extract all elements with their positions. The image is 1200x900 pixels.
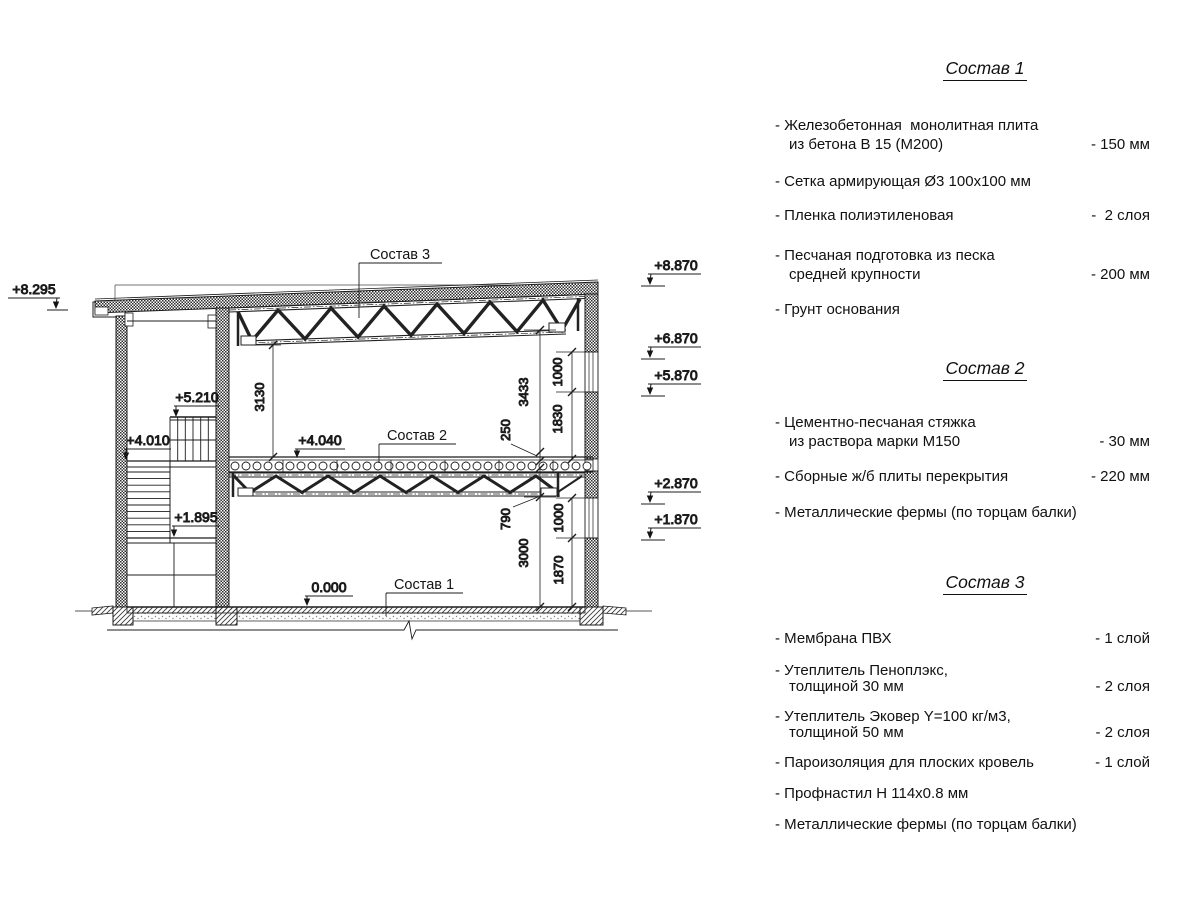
layer-item: - Пароизоляция для плоских кровель - 1 с… xyxy=(775,755,1150,771)
layer-text: толщиной 50 мм xyxy=(775,725,1150,741)
elevation-4010: +4.010 xyxy=(123,432,171,460)
layer-thickness: - 220 мм xyxy=(1091,467,1150,486)
ground-floor xyxy=(75,606,652,639)
drawing-sheet: 3130 3433 250 790 3000 xyxy=(0,0,1200,900)
elevation-roof-value: +8.870 xyxy=(654,257,697,273)
layer-item: - Цементно-песчаная стяжка из раствора м… xyxy=(775,413,1150,451)
layer-text: толщиной 30 мм xyxy=(775,679,1150,695)
elevation-eave: +8.295 xyxy=(8,281,68,310)
layer-thickness: - 150 мм xyxy=(1091,135,1150,154)
elevation-4040: +4.040 xyxy=(294,432,345,458)
elevation-0000-value: 0.000 xyxy=(311,579,346,595)
elevation-2870: +2.870 xyxy=(641,475,701,504)
layer-item: - Сетка армирующая Ø3 100х100 мм xyxy=(775,172,1150,191)
ground-line xyxy=(107,621,618,639)
layer-thickness: - 1 слой xyxy=(1095,755,1150,771)
label-sostav1: Состав 1 xyxy=(394,577,454,593)
layer-item: - Утеплитель Пеноплэкс, толщиной 30 мм -… xyxy=(775,663,1150,695)
label-sostav2: Состав 2 xyxy=(387,428,447,444)
elevation-4040-value: +4.040 xyxy=(298,432,341,448)
layer-text: - Песчаная подготовка из песка xyxy=(775,246,1150,265)
elevation-roof: +8.870 xyxy=(641,257,701,286)
stair-wall xyxy=(216,308,229,607)
layer-item: - Утеплитель Эковер Y=100 кг/м3, толщино… xyxy=(775,709,1150,741)
floor-truss xyxy=(229,473,585,497)
dim-1830: 1830 xyxy=(550,405,565,434)
layer-item: - Песчаная подготовка из песка средней к… xyxy=(775,246,1150,284)
elevation-1895-value: +1.895 xyxy=(174,509,217,525)
dim-3130: 3130 xyxy=(252,383,267,412)
staircase xyxy=(125,313,216,607)
dim-1000-upper: 1000 xyxy=(550,358,565,387)
dim-3433: 3433 xyxy=(516,378,531,407)
eave-gutter xyxy=(95,307,108,315)
layer-text: - Мембрана ПВХ xyxy=(775,631,1150,647)
elevation-6870: +6.870 xyxy=(641,330,701,359)
layer-item: - Железобетонная монолитная плита из бет… xyxy=(775,116,1150,154)
elevation-5870: +5.870 xyxy=(641,367,701,396)
leader-sostav2: Состав 2 xyxy=(379,428,456,463)
layer-text: - Цементно-песчаная стяжка xyxy=(775,413,1150,432)
dim-left-clear: 3130 xyxy=(252,341,281,461)
layer-text: - Сетка армирующая Ø3 100х100 мм xyxy=(775,172,1150,191)
dim-790: 790 xyxy=(498,508,513,530)
dim-250: 250 xyxy=(498,419,513,441)
layer-thickness: - 2 слоя xyxy=(1095,679,1150,695)
stair-railing xyxy=(170,417,216,461)
elevation-5210-value: +5.210 xyxy=(175,389,218,405)
layer-text: - Металлические фермы (по торцам балки) xyxy=(775,817,1150,833)
elevation-6870-value: +6.870 xyxy=(654,330,697,346)
layer-item: - Металлические фермы (по торцам балки) xyxy=(775,503,1150,522)
dim-3000: 3000 xyxy=(516,539,531,568)
layer-item: - Мембрана ПВХ - 1 слой xyxy=(775,631,1150,647)
leader-sostav3: Состав 3 xyxy=(359,247,442,318)
section-title-sostav2: Состав 2 xyxy=(785,358,1185,379)
layer-text: - Утеплитель Эковер Y=100 кг/м3, xyxy=(775,709,1150,725)
dim-wall-column: 1000 1830 1000 1870 xyxy=(550,348,586,611)
left-wall xyxy=(116,316,127,607)
elevation-2870-value: +2.870 xyxy=(654,475,697,491)
section-title-sostav1: Состав 1 xyxy=(785,58,1185,79)
elevation-5870-value: +5.870 xyxy=(654,367,697,383)
layer-text: - Утеплитель Пеноплэкс, xyxy=(775,663,1150,679)
layer-text: - Железобетонная монолитная плита xyxy=(775,116,1150,135)
elevation-0000: 0.000 xyxy=(304,579,353,606)
elevation-5210: +5.210 xyxy=(173,389,219,417)
layer-item: - Грунт основания xyxy=(775,300,1150,319)
layer-item: - Металлические фермы (по торцам балки) xyxy=(775,817,1150,833)
layer-text: - Профнастил Н 114х0.8 мм xyxy=(775,786,1150,802)
composition-panel: Состав 1 - Железобетонная монолитная пли… xyxy=(760,0,1200,900)
layer-text: из раствора марки М150 xyxy=(775,432,1150,451)
layer-item: - Профнастил Н 114х0.8 мм xyxy=(775,786,1150,802)
layer-item: - Сборные ж/б плиты перекрытия - 220 мм xyxy=(775,467,1150,486)
layer-thickness: - 2 слоя xyxy=(1091,206,1150,225)
stair-treads xyxy=(127,472,170,538)
elevation-1870: +1.870 xyxy=(641,511,701,540)
building-section-drawing: 3130 3433 250 790 3000 xyxy=(0,0,760,900)
dim-1870: 1870 xyxy=(551,556,566,585)
layer-thickness: - 30 мм xyxy=(1099,432,1150,451)
layer-thickness: - 1 слой xyxy=(1095,631,1150,647)
layer-text: - Пароизоляция для плоских кровель xyxy=(775,755,1150,771)
elevation-1870-value: +1.870 xyxy=(654,511,697,527)
dim-1000-lower: 1000 xyxy=(551,504,566,533)
right-wall xyxy=(585,294,598,607)
elevation-1895: +1.895 xyxy=(171,509,219,537)
layer-text: - Металлические фермы (по торцам балки) xyxy=(775,503,1150,522)
elevation-4010-value: +4.010 xyxy=(126,432,169,448)
section-title-sostav3: Состав 3 xyxy=(785,572,1185,593)
right-apron xyxy=(603,606,626,615)
left-apron xyxy=(92,606,113,615)
elevation-eave-value: +8.295 xyxy=(12,281,55,297)
layer-text: - Грунт основания xyxy=(775,300,1150,319)
label-sostav3: Состав 3 xyxy=(370,247,430,263)
layer-item: - Пленка полиэтиленовая - 2 слоя xyxy=(775,206,1150,225)
layer-thickness: - 2 слоя xyxy=(1095,725,1150,741)
layer-thickness: - 200 мм xyxy=(1091,265,1150,284)
